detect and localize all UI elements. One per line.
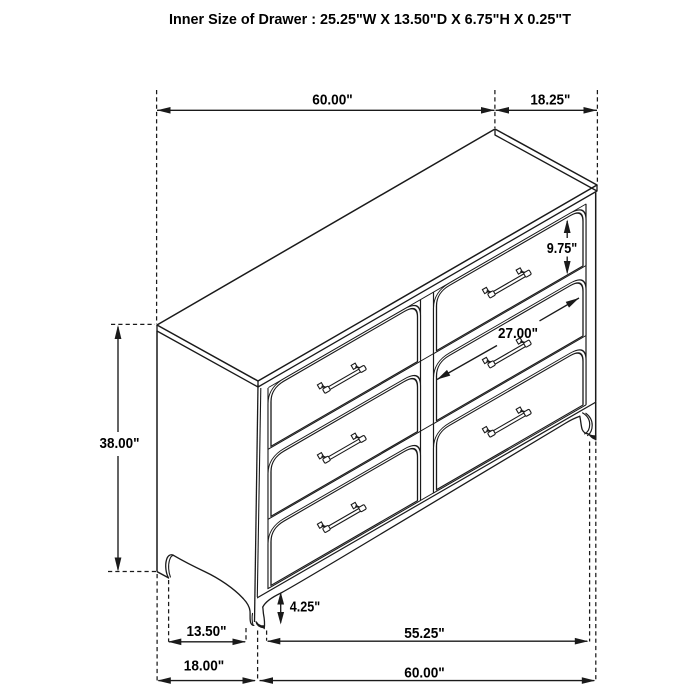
svg-text:Inner Size of Drawer : 25.25"W: Inner Size of Drawer : 25.25"W X 13.50"D… <box>169 12 571 28</box>
svg-text:55.25": 55.25" <box>404 626 445 642</box>
svg-text:60.00": 60.00" <box>404 666 445 682</box>
svg-text:38.00": 38.00" <box>100 436 140 452</box>
svg-text:18.25": 18.25" <box>530 93 570 109</box>
svg-text:60.00": 60.00" <box>312 93 353 109</box>
svg-text:27.00": 27.00" <box>498 326 538 342</box>
svg-text:4.25": 4.25" <box>290 600 321 616</box>
svg-text:9.75": 9.75" <box>547 241 578 257</box>
svg-text:18.00": 18.00" <box>184 659 225 675</box>
svg-text:13.50": 13.50" <box>187 624 227 640</box>
